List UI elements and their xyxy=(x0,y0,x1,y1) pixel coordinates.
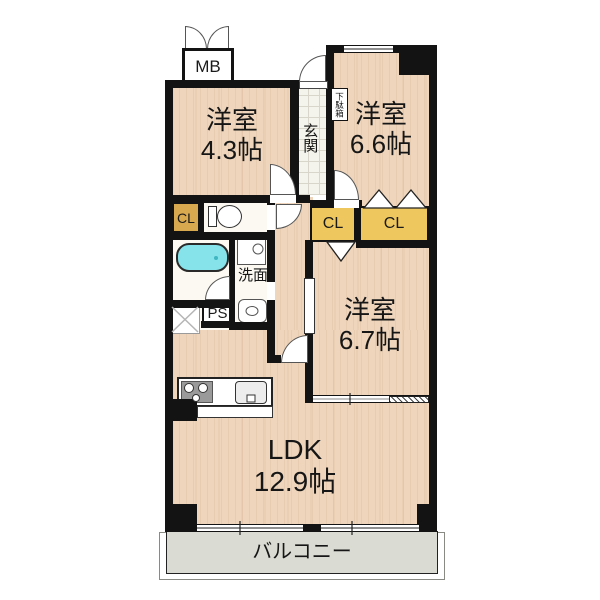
kitchen-counter-front xyxy=(197,406,273,418)
door-opening xyxy=(334,200,359,208)
door-opening xyxy=(270,195,296,203)
room-ne-name: 洋室 xyxy=(333,100,429,130)
room-e-name: 洋室 xyxy=(311,296,429,326)
genkan-label: 玄関 xyxy=(301,108,318,168)
opening-room-e-ldk xyxy=(313,396,389,402)
window-ldk-left xyxy=(197,524,303,532)
window-top xyxy=(344,45,393,53)
room-e-size: 6.7帖 xyxy=(311,326,429,356)
floorplan-canvas: バルコニー MB PS CL xyxy=(0,0,600,600)
ldk-label: LDK 12.9帖 xyxy=(200,434,390,498)
room-nw-label: 洋室 4.3帖 xyxy=(172,106,292,166)
closet-east-label: CL xyxy=(384,215,404,233)
door-opening xyxy=(267,205,275,230)
entry-door-arc xyxy=(299,55,326,82)
wall-segment xyxy=(229,322,275,330)
washstand-sink xyxy=(238,299,267,323)
meter-box-label: MB xyxy=(195,57,221,77)
toilet-tank xyxy=(208,206,217,227)
balcony-label: バルコニー xyxy=(252,541,352,564)
wall-corner-pillar xyxy=(165,504,197,532)
washing-machine xyxy=(237,238,266,265)
closet-west: CL xyxy=(172,202,200,233)
washroom-label: 洗面 xyxy=(231,267,275,284)
toilet-bowl xyxy=(217,205,242,228)
door-opening xyxy=(267,282,275,300)
mb-door-left-arc xyxy=(185,26,207,49)
room-ne-size: 6.6帖 xyxy=(333,130,429,160)
entry-door-leaf xyxy=(299,81,328,89)
wall-segment xyxy=(165,80,300,88)
wall-segment xyxy=(165,300,235,308)
wall-corner-pillar xyxy=(417,504,437,532)
ldk-name: LDK xyxy=(200,434,390,466)
room-nw-size: 4.3帖 xyxy=(172,136,292,166)
bathtub xyxy=(176,243,229,272)
mb-door-right-arc xyxy=(207,26,229,49)
room-e-label: 洋室 6.7帖 xyxy=(311,296,429,356)
wall-right xyxy=(429,45,437,532)
balcony-area: バルコニー xyxy=(166,531,438,574)
wall-segment xyxy=(201,321,234,328)
void-hatched-box xyxy=(170,305,200,334)
room-nw-name: 洋室 xyxy=(172,106,292,136)
kitchen-sink xyxy=(235,381,267,404)
room-ne-label: 洋室 6.6帖 xyxy=(333,100,429,160)
ldk-size: 12.9帖 xyxy=(200,466,390,498)
wall-kitchen-pillar xyxy=(165,399,197,421)
closet-center-label: CL xyxy=(323,215,343,233)
closet-west-label: CL xyxy=(177,210,195,226)
wall-segment xyxy=(165,232,275,240)
closet-east: CL xyxy=(359,206,429,242)
window-ldk-right xyxy=(321,524,419,532)
hatched-window xyxy=(389,396,429,403)
closet-center: CL xyxy=(310,206,356,242)
